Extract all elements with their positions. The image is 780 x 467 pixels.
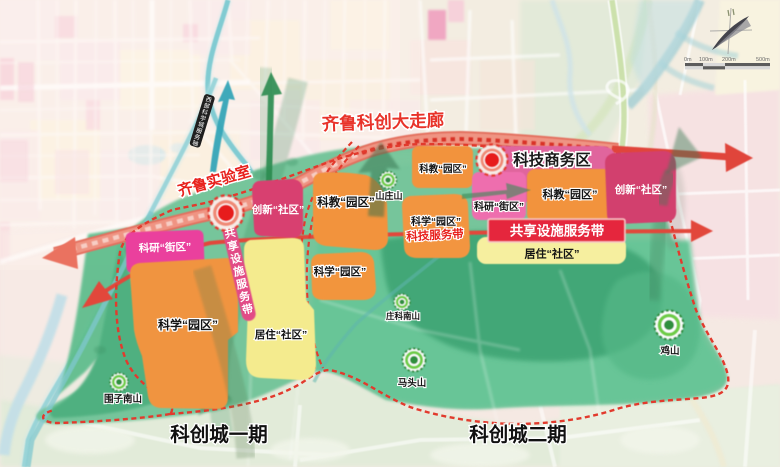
svg-text:科学“园区”: 科学“园区” xyxy=(158,317,218,332)
svg-text:居住“社区”: 居住“社区” xyxy=(255,328,308,341)
svg-text:庄科南山: 庄科南山 xyxy=(386,311,420,321)
svg-text:100m: 100m xyxy=(699,57,713,63)
svg-text:科教“园区”: 科教“园区” xyxy=(317,195,375,209)
svg-text:创新“社区”: 创新“社区” xyxy=(251,203,305,216)
svg-text:居住“社区”: 居住“社区” xyxy=(525,247,580,261)
svg-text:科教“园区”: 科教“园区” xyxy=(543,187,598,201)
svg-text:马头山: 马头山 xyxy=(398,377,427,389)
svg-text:山庄山: 山庄山 xyxy=(375,190,402,201)
svg-text:围子南山: 围子南山 xyxy=(104,393,142,405)
svg-text:500m: 500m xyxy=(756,57,770,63)
svg-text:0m: 0m xyxy=(684,57,692,63)
svg-text:科研“街区”: 科研“街区” xyxy=(139,240,192,255)
svg-text:齐鲁科创大走廊: 齐鲁科创大走廊 xyxy=(321,110,444,134)
svg-text:科学“园区”: 科学“园区” xyxy=(411,215,461,228)
svg-text:科创城一期: 科创城一期 xyxy=(170,423,268,446)
svg-text:共享设施服务带: 共享设施服务带 xyxy=(510,223,605,239)
svg-text:科教“园区”: 科教“园区” xyxy=(419,163,467,175)
svg-text:科研“街区”: 科研“街区” xyxy=(474,200,524,213)
svg-text:200m: 200m xyxy=(722,57,736,63)
svg-text:科创城二期: 科创城二期 xyxy=(469,423,567,446)
svg-text:科学“园区”: 科学“园区” xyxy=(314,265,367,278)
svg-text:鸡山: 鸡山 xyxy=(659,345,679,357)
svg-text:创新“社区”: 创新“社区” xyxy=(614,183,668,196)
svg-text:科技商务区: 科技商务区 xyxy=(513,150,591,169)
